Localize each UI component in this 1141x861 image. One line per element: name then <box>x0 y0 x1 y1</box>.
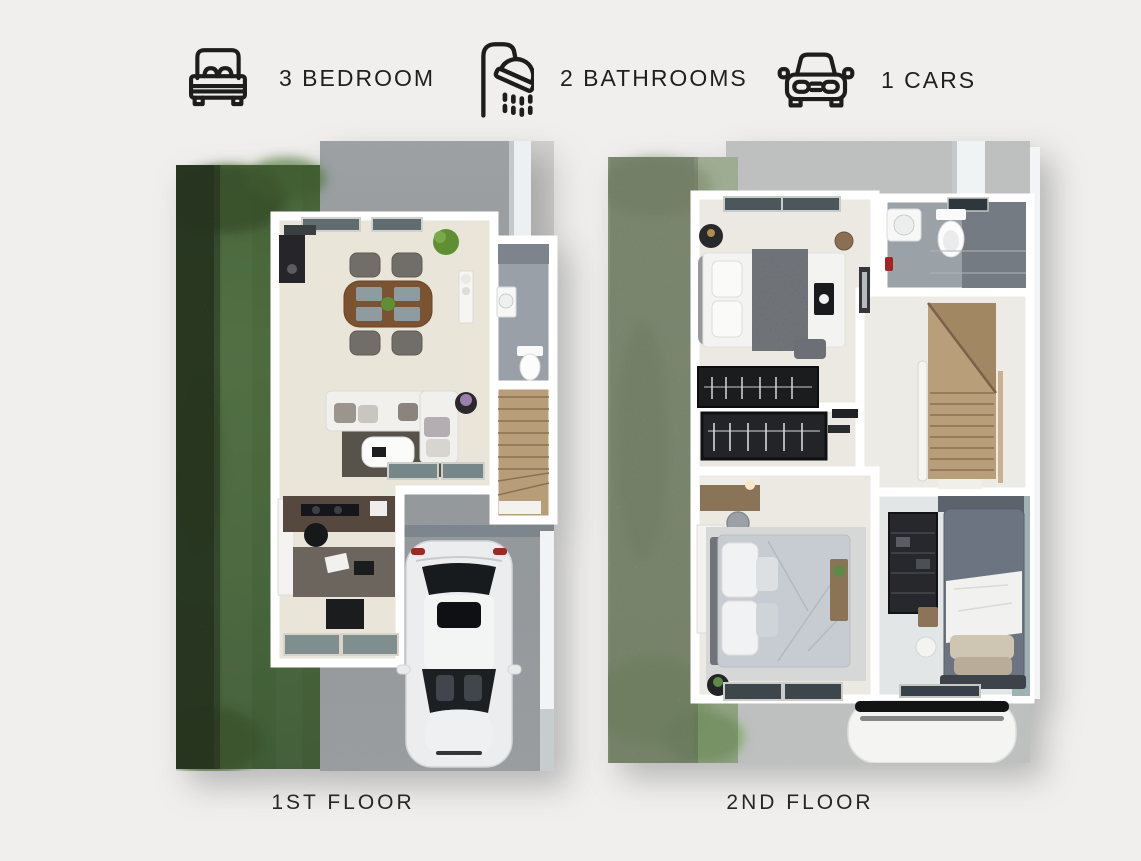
window <box>342 634 398 655</box>
feature-cars: 1 CARS <box>777 47 976 113</box>
office-chair <box>304 523 328 547</box>
shower-icon <box>474 36 534 120</box>
bedrooms-label: 3 BEDROOM <box>279 65 435 92</box>
garage-tile-strip <box>400 525 554 537</box>
rear-window <box>422 563 496 595</box>
bed <box>940 509 1026 689</box>
window <box>372 218 422 231</box>
crate <box>918 607 938 627</box>
toilet-tank <box>936 209 966 220</box>
handrail <box>998 371 1003 483</box>
car-roof <box>848 701 1016 763</box>
stair-railing <box>918 361 927 481</box>
windshield <box>422 669 496 713</box>
taillight <box>411 548 425 555</box>
washbasin <box>499 294 513 308</box>
tv-console <box>279 235 305 283</box>
wardrobe <box>698 367 818 407</box>
second-floor-caption: 2ND FLOOR <box>608 791 992 815</box>
feature-bedrooms: 3 BEDROOM <box>183 44 435 112</box>
second-floor-plan <box>608 141 1040 763</box>
staircase-area <box>918 303 1003 489</box>
first-floor-caption: 1ST FLOOR <box>176 791 510 815</box>
taillight <box>493 548 507 555</box>
feature-bathrooms: 2 BATHROOMS <box>474 36 748 120</box>
floor-plan-poster: 3 BEDROOM 2 BATHROOMS 1 <box>0 0 1141 861</box>
toilet <box>520 354 540 380</box>
first-floor-render <box>176 141 568 771</box>
first-floor-plan <box>176 141 568 771</box>
parked-car <box>397 541 521 767</box>
shelving-unit <box>889 513 937 613</box>
window <box>284 634 340 655</box>
side-mirror <box>397 665 410 674</box>
bathrooms-label: 2 BATHROOMS <box>560 65 748 92</box>
car-icon <box>777 47 855 113</box>
second-floor-render <box>608 141 1040 763</box>
cooktop <box>301 504 359 516</box>
stool <box>916 637 936 657</box>
sunroof <box>437 602 481 628</box>
window <box>784 683 842 700</box>
window <box>900 685 980 697</box>
pendant-lamp <box>835 232 853 250</box>
side-mirror <box>508 665 521 674</box>
fire-extinguisher <box>885 257 893 271</box>
bed-icon <box>183 44 253 112</box>
wall-picture <box>284 225 316 235</box>
printer-unit <box>326 599 364 629</box>
cars-label: 1 CARS <box>881 67 976 94</box>
glass-door <box>442 463 484 479</box>
window <box>724 683 782 700</box>
glass-door <box>388 463 438 479</box>
staircase <box>494 385 553 520</box>
washbasin <box>894 215 914 235</box>
